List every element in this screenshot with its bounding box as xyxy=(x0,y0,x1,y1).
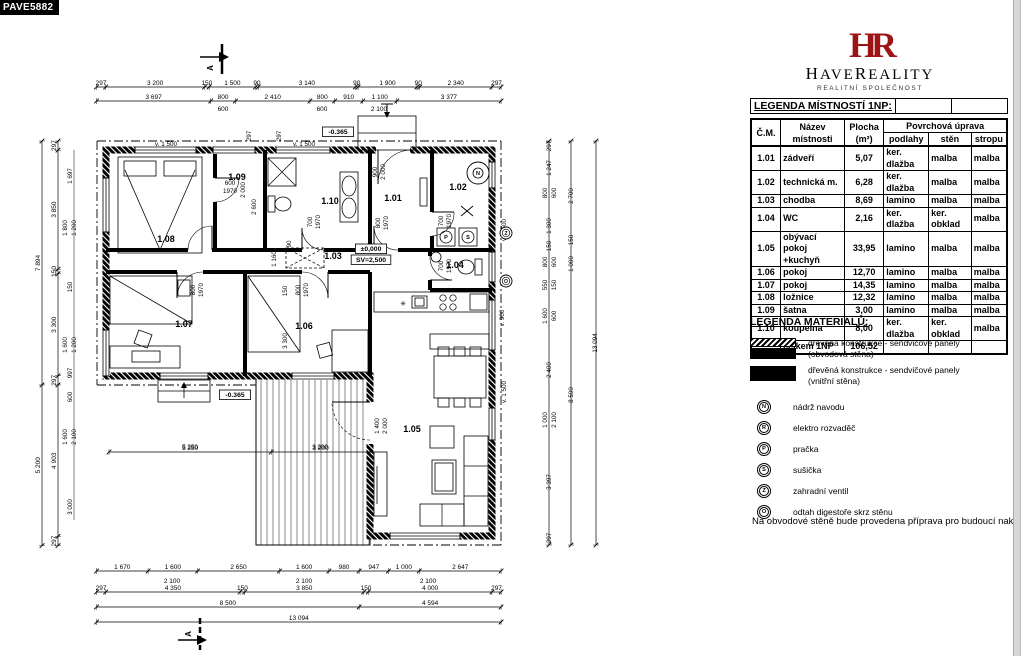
svg-text:800: 800 xyxy=(190,284,197,295)
symbol-item-s: Ssušička xyxy=(757,463,1017,477)
room-label-1.08: 1.08 xyxy=(157,234,175,244)
svg-text:2 340: 2 340 xyxy=(448,80,465,87)
room-row: 1.08ložnice12,32laminomalbamalba xyxy=(751,292,1007,305)
p-symbol-icon: P xyxy=(757,442,771,456)
svg-text:600: 600 xyxy=(67,391,74,402)
svg-text:1 000: 1 000 xyxy=(396,564,413,571)
svg-text:150: 150 xyxy=(551,279,558,290)
svg-text:3 697: 3 697 xyxy=(145,94,162,101)
svg-text:1 200: 1 200 xyxy=(71,220,78,236)
svg-text:P: P xyxy=(444,235,448,241)
svg-text:4 594: 4 594 xyxy=(422,600,439,607)
svg-text:4 903: 4 903 xyxy=(51,452,58,469)
col-header-wall: stěn xyxy=(929,133,972,147)
svg-text:1 200: 1 200 xyxy=(71,337,78,353)
room-label-1.05: 1.05 xyxy=(403,424,421,434)
svg-text:1 160: 1 160 xyxy=(271,251,278,267)
svg-text:4 350: 4 350 xyxy=(165,585,182,592)
svg-text:Z: Z xyxy=(504,231,507,237)
svg-text:✳: ✳ xyxy=(400,300,406,308)
svg-text:3 300: 3 300 xyxy=(51,316,58,333)
svg-text:SV=2,500: SV=2,500 xyxy=(356,257,386,264)
svg-text:3 377: 3 377 xyxy=(441,94,458,101)
room-label-1.01: 1.01 xyxy=(384,193,402,203)
svg-text:3 140: 3 140 xyxy=(299,80,316,87)
room-legend-title-cell xyxy=(952,98,1008,114)
svg-text:297: 297 xyxy=(491,585,502,592)
materials-legend-title: LEGENDA MATERIÁLŮ: xyxy=(750,316,1012,328)
svg-text:2 400: 2 400 xyxy=(546,362,553,378)
svg-text:1 900: 1 900 xyxy=(379,80,396,87)
room-row: 1.04WC2,16ker. dlažbaker. obkladmalba xyxy=(751,207,1007,231)
col-header-surface: Povrchová úprava xyxy=(884,119,1007,133)
symbol-item-n: Nnádrž navodu xyxy=(757,400,1017,414)
svg-text:A: A xyxy=(184,631,193,637)
svg-text:90: 90 xyxy=(286,240,293,248)
svg-text:1970: 1970 xyxy=(446,214,453,229)
room-label-1.02: 1.02 xyxy=(449,182,467,192)
svg-text:700: 700 xyxy=(307,216,314,227)
room-row: 1.02technická m.6,28ker. dlažbamalbamalb… xyxy=(751,171,1007,195)
svg-text:1 600: 1 600 xyxy=(62,337,69,353)
room-legend-title-cell xyxy=(896,98,952,114)
svg-text:910: 910 xyxy=(343,94,354,101)
svg-text:297: 297 xyxy=(546,140,553,151)
col-header-floor: podlahy xyxy=(884,133,929,147)
svg-text:2 410: 2 410 xyxy=(265,94,282,101)
svg-text:297: 297 xyxy=(491,80,502,87)
room-label-1.10: 1.10 xyxy=(321,196,339,206)
svg-text:1970: 1970 xyxy=(383,216,390,231)
room-label-1.07: 1.07 xyxy=(175,319,193,329)
svg-text:2 000: 2 000 xyxy=(380,164,387,180)
svg-text:1 600: 1 600 xyxy=(165,564,182,571)
room-row: 1.05obývací pokoj +kuchyň33,95laminomalb… xyxy=(751,231,1007,267)
footnote: Na obvodové stěně bude provedena příprav… xyxy=(752,516,1014,527)
svg-text:2 100: 2 100 xyxy=(164,578,181,585)
svg-text:2 100: 2 100 xyxy=(551,412,558,428)
svg-text:550: 550 xyxy=(542,279,549,290)
svg-text:150: 150 xyxy=(361,585,372,592)
svg-text:297: 297 xyxy=(276,130,283,141)
svg-text:3 300: 3 300 xyxy=(282,333,289,349)
svg-text:980: 980 xyxy=(339,564,350,571)
svg-text:v. 1 500: v. 1 500 xyxy=(155,141,177,148)
svg-text:150: 150 xyxy=(237,585,248,592)
col-header-ceiling: stropu xyxy=(971,133,1007,147)
svg-text:2 600: 2 600 xyxy=(251,199,258,215)
col-header-num: Č.M. xyxy=(751,119,781,146)
svg-text:1 000: 1 000 xyxy=(542,412,549,428)
svg-text:2 100: 2 100 xyxy=(71,429,78,445)
logo-monogram: HR xyxy=(795,28,945,62)
svg-text:3 850: 3 850 xyxy=(296,585,313,592)
svg-text:8 500: 8 500 xyxy=(568,387,575,403)
svg-text:600: 600 xyxy=(551,187,558,198)
svg-text:3 200: 3 200 xyxy=(147,80,164,87)
room-legend-title: LEGENDA MÍSTNOSTÍ 1NP: xyxy=(750,98,896,114)
symbol-item-p: Ppračka xyxy=(757,442,1017,456)
svg-text:2 647: 2 647 xyxy=(452,564,469,571)
svg-text:-0.365: -0.365 xyxy=(328,129,347,136)
svg-text:1 400: 1 400 xyxy=(374,418,381,434)
svg-text:600: 600 xyxy=(317,106,328,113)
svg-text:O: O xyxy=(504,279,508,285)
svg-text:2 000: 2 000 xyxy=(382,418,389,434)
svg-text:297: 297 xyxy=(546,532,553,543)
svg-text:7 894: 7 894 xyxy=(35,254,42,271)
svg-text:3 397: 3 397 xyxy=(546,474,553,490)
svg-text:150: 150 xyxy=(568,234,575,245)
svg-text:1 500: 1 500 xyxy=(224,80,241,87)
svg-text:1 600: 1 600 xyxy=(296,564,313,571)
floor-plan-svg: ✳AA2973 2001501 500903 140901 900902 340… xyxy=(0,0,660,656)
room-label-1.06: 1.06 xyxy=(295,321,313,331)
svg-text:2 650: 2 650 xyxy=(230,564,247,571)
svg-text:4 000: 4 000 xyxy=(422,585,439,592)
svg-text:13 094: 13 094 xyxy=(289,615,309,622)
svg-text:150: 150 xyxy=(201,80,212,87)
svg-text:700: 700 xyxy=(438,260,445,271)
svg-text:600: 600 xyxy=(218,106,229,113)
svg-text:1 300: 1 300 xyxy=(546,218,553,234)
col-header-area: Plocha (m²) xyxy=(844,119,883,146)
svg-text:1 247: 1 247 xyxy=(546,160,553,176)
svg-text:800: 800 xyxy=(295,284,302,295)
svg-text:1970: 1970 xyxy=(303,283,310,298)
r-symbol-icon: R xyxy=(757,421,771,435)
materials-legend: LEGENDA MATERIÁLŮ: dřevěná konstrukce - … xyxy=(750,316,1012,392)
svg-text:1970: 1970 xyxy=(315,215,322,230)
svg-text:800: 800 xyxy=(542,256,549,267)
svg-text:5 200: 5 200 xyxy=(35,457,42,474)
svg-text:S: S xyxy=(466,235,470,241)
svg-text:1 800: 1 800 xyxy=(62,220,69,236)
svg-text:1 100: 1 100 xyxy=(372,94,389,101)
svg-text:947: 947 xyxy=(368,564,379,571)
scrollbar[interactable] xyxy=(1013,0,1021,656)
svg-text:5 250: 5 250 xyxy=(182,444,198,451)
svg-text:2 700: 2 700 xyxy=(568,188,575,204)
svg-text:600: 600 xyxy=(551,256,558,267)
svg-text:A: A xyxy=(206,65,215,71)
exterior-wall-swatch xyxy=(750,338,796,359)
room-label-1.04: 1.04 xyxy=(446,260,464,270)
svg-text:3 000: 3 000 xyxy=(67,499,74,515)
svg-text:-0.365: -0.365 xyxy=(225,392,244,399)
svg-text:600: 600 xyxy=(551,310,558,321)
svg-text:150: 150 xyxy=(282,285,289,296)
material-item: dřevěná konstrukce - sendvičové panely(o… xyxy=(750,338,1012,359)
svg-text:900: 900 xyxy=(372,166,379,177)
svg-text:700: 700 xyxy=(438,215,445,226)
svg-text:800: 800 xyxy=(542,187,549,198)
material-item: dřevěná konstrukce - sendvičové panely(v… xyxy=(750,365,1012,386)
svg-text:v. 1 500: v. 1 500 xyxy=(501,381,508,403)
col-header-name: Název místnosti xyxy=(781,119,845,146)
svg-text:3 200: 3 200 xyxy=(312,444,328,451)
svg-text:2 100: 2 100 xyxy=(371,106,388,113)
svg-text:±0,000: ±0,000 xyxy=(361,246,382,253)
svg-text:2 000: 2 000 xyxy=(240,182,247,198)
svg-text:297: 297 xyxy=(51,535,58,546)
svg-text:N: N xyxy=(476,171,480,177)
floor-plan-drawing: ✳AA2973 2001501 500903 140901 900902 340… xyxy=(0,0,660,656)
logo-subtitle: REALITNÍ SPOLEČNOST xyxy=(795,85,945,92)
svg-text:1 670: 1 670 xyxy=(114,564,131,571)
svg-text:297: 297 xyxy=(96,585,107,592)
svg-text:1 600: 1 600 xyxy=(542,308,549,324)
svg-text:297: 297 xyxy=(246,130,253,141)
svg-text:297: 297 xyxy=(51,375,58,386)
svg-text:150: 150 xyxy=(546,240,553,251)
room-row: 1.07pokoj14,35laminomalbamalba xyxy=(751,279,1007,292)
svg-text:800: 800 xyxy=(375,217,382,228)
s-symbol-icon: S xyxy=(757,463,771,477)
svg-text:297: 297 xyxy=(51,140,58,151)
svg-text:297: 297 xyxy=(96,80,107,87)
svg-text:13 094: 13 094 xyxy=(592,333,599,353)
logo-name: HAVEREALITY xyxy=(795,64,945,84)
z-symbol-icon: Z xyxy=(757,484,771,498)
svg-text:150: 150 xyxy=(67,281,74,292)
svg-text:2 100: 2 100 xyxy=(296,578,313,585)
svg-text:1970: 1970 xyxy=(223,188,238,195)
room-row: 1.03chodba8,69laminomalbamalba xyxy=(751,195,1007,208)
svg-text:1 600: 1 600 xyxy=(62,429,69,445)
room-row: 1.06pokoj12,70laminomalbamalba xyxy=(751,267,1007,280)
symbol-item-z: Zzahradní ventil xyxy=(757,484,1017,498)
svg-text:v. 900: v. 900 xyxy=(499,309,506,326)
room-label-1.03: 1.03 xyxy=(324,251,342,261)
svg-text:997: 997 xyxy=(67,367,74,378)
svg-text:8 500: 8 500 xyxy=(220,600,237,607)
svg-text:2 100: 2 100 xyxy=(420,578,437,585)
svg-text:800: 800 xyxy=(317,94,328,101)
svg-text:1970: 1970 xyxy=(198,283,205,298)
room-row: 1.09šatna3,00laminomalbamalba xyxy=(751,304,1007,317)
brand-logo: HR HAVEREALITY REALITNÍ SPOLEČNOST xyxy=(795,28,945,92)
svg-text:1 000: 1 000 xyxy=(568,256,575,272)
symbol-legend: Nnádrž navoduRelektro rozvaděčPpračkaSsu… xyxy=(757,400,1017,526)
svg-text:v. 1 500: v. 1 500 xyxy=(293,141,315,148)
svg-text:3 850: 3 850 xyxy=(51,201,58,218)
room-label-1.09: 1.09 xyxy=(228,172,246,182)
svg-text:1 697: 1 697 xyxy=(67,168,74,184)
symbol-item-r: Relektro rozvaděč xyxy=(757,421,1017,435)
room-row: 1.01zádveří5,07ker. dlažbamalbamalba xyxy=(751,146,1007,171)
interior-wall-swatch xyxy=(750,365,796,386)
svg-text:800: 800 xyxy=(218,94,229,101)
n-symbol-icon: N xyxy=(757,400,771,414)
